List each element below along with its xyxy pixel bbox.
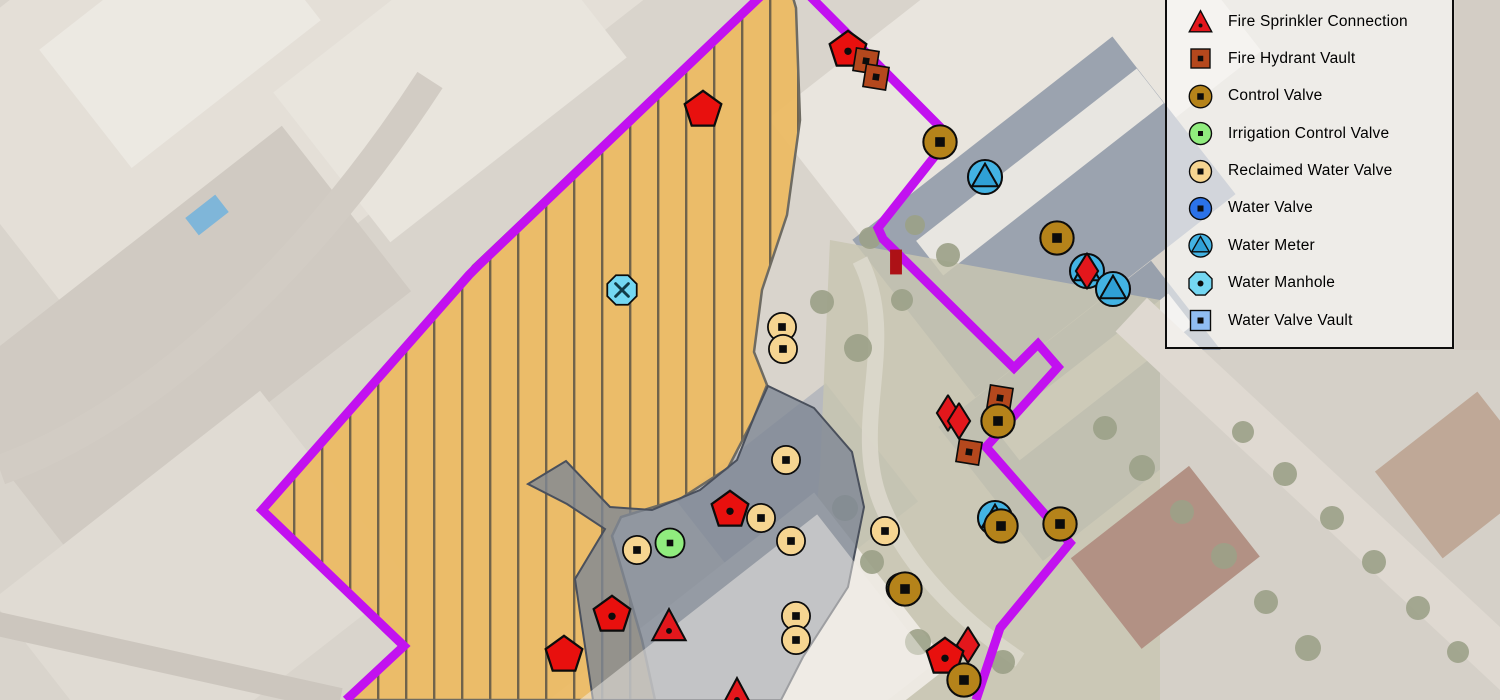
control-valve-marker[interactable] xyxy=(922,124,959,161)
water-manhole-icon xyxy=(1188,271,1213,296)
legend: Fire Sprinkler ConnectionFire Hydrant Va… xyxy=(1165,0,1454,349)
reclaimed-water-valve-marker[interactable] xyxy=(775,525,807,557)
control-valve-marker[interactable] xyxy=(1042,506,1079,543)
legend-item-fire-sprinkler-connection: Fire Sprinkler Connection xyxy=(1188,9,1446,34)
control-valve-marker[interactable] xyxy=(1039,220,1076,257)
red-rectangle-marker[interactable] xyxy=(883,249,910,276)
irrigation-control-valve-marker[interactable] xyxy=(654,527,687,560)
reclaimed-water-valve-marker[interactable] xyxy=(745,502,777,534)
legend-item-water-valve: Water Valve xyxy=(1188,196,1446,221)
legend-item-control-valve: Control Valve xyxy=(1188,84,1446,109)
legend-item-irrigation-control-valve: Irrigation Control Valve xyxy=(1188,121,1446,146)
control-valve-marker[interactable] xyxy=(946,662,983,699)
legend-item-label: Water Valve xyxy=(1228,199,1313,217)
irrigation-control-valve-icon xyxy=(1188,121,1213,146)
legend-item-water-meter: Water Meter xyxy=(1188,233,1446,258)
fire-hydrant-vault-marker[interactable] xyxy=(954,437,984,467)
legend-item-reclaimed-water-valve: Reclaimed Water Valve xyxy=(1188,159,1446,184)
fire-hydrant-marker[interactable] xyxy=(544,633,585,674)
legend-item-fire-hydrant-vault: Fire Hydrant Vault xyxy=(1188,46,1446,71)
legend-item-label: Control Valve xyxy=(1228,87,1323,105)
water-meter-marker[interactable] xyxy=(967,159,1004,196)
control-valve-marker[interactable] xyxy=(887,571,924,608)
reclaimed-water-valve-marker[interactable] xyxy=(770,444,802,476)
fire-hydrant-vault-icon xyxy=(1188,46,1213,71)
legend-item-label: Fire Sprinkler Connection xyxy=(1228,13,1408,31)
reclaimed-water-valve-icon xyxy=(1188,159,1213,184)
legend-item-label: Water Valve Vault xyxy=(1228,312,1353,330)
reclaimed-water-valve-marker[interactable] xyxy=(780,624,812,656)
water-manhole-marker[interactable] xyxy=(606,274,638,306)
legend-item-label: Reclaimed Water Valve xyxy=(1228,162,1392,180)
water-valve-vault-icon xyxy=(1188,308,1213,333)
fire-sprinkler-connection-marker[interactable] xyxy=(651,607,688,644)
legend-item-label: Irrigation Control Valve xyxy=(1228,125,1389,143)
map-canvas[interactable]: Fire Sprinkler ConnectionFire Hydrant Va… xyxy=(0,0,1500,700)
fire-hydrant-marker[interactable] xyxy=(683,88,724,129)
red-diamond-marker[interactable] xyxy=(1069,253,1106,290)
fire-hydrant-marker[interactable] xyxy=(592,593,633,634)
legend-item-label: Fire Hydrant Vault xyxy=(1228,50,1355,68)
fire-hydrant-vault-marker[interactable] xyxy=(861,62,891,92)
control-valve-marker[interactable] xyxy=(983,508,1020,545)
control-valve-icon xyxy=(1188,84,1213,109)
legend-item-label: Water Manhole xyxy=(1228,274,1335,292)
control-valve-marker[interactable] xyxy=(980,403,1017,440)
reclaimed-water-valve-marker[interactable] xyxy=(767,333,799,365)
reclaimed-water-valve-marker[interactable] xyxy=(869,515,901,547)
water-meter-icon xyxy=(1188,233,1213,258)
water-valve-icon xyxy=(1188,196,1213,221)
fire-sprinkler-connection-marker[interactable] xyxy=(719,676,756,700)
legend-item-label: Water Meter xyxy=(1228,237,1315,255)
legend-item-water-manhole: Water Manhole xyxy=(1188,271,1446,296)
legend-item-water-valve-vault: Water Valve Vault xyxy=(1188,308,1446,333)
fire-sprinkler-connection-icon xyxy=(1188,9,1213,34)
red-diamond-marker[interactable] xyxy=(941,403,978,440)
reclaimed-water-valve-marker[interactable] xyxy=(621,534,653,566)
